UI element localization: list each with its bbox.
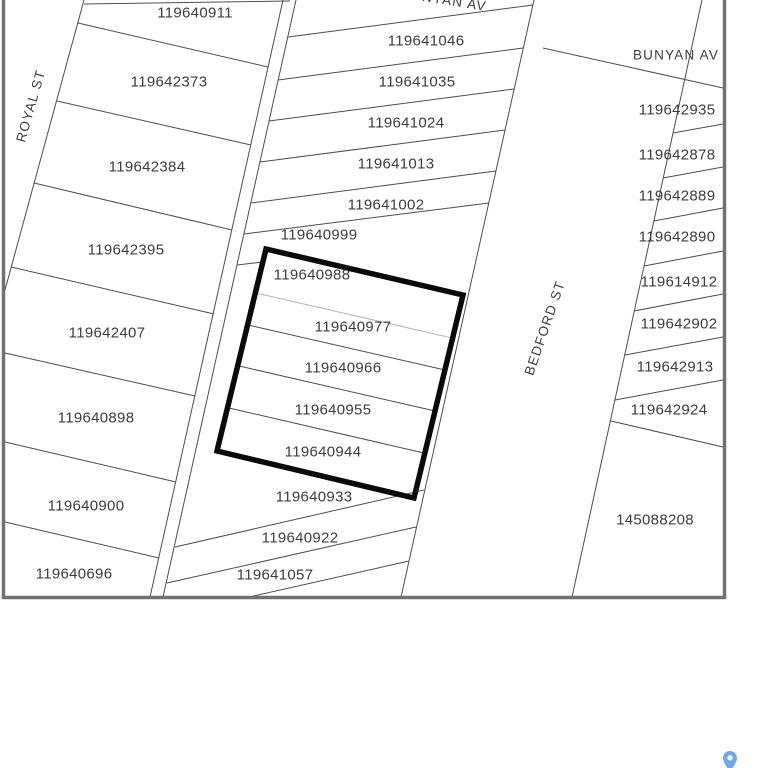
- parcel-label-119642407: 119642407: [69, 326, 146, 341]
- parcel-label-119642924: 119642924: [631, 403, 708, 418]
- parcel-label-119642878: 119642878: [639, 148, 716, 163]
- street-label-bunyan-av: BUNYAN AV: [400, 0, 487, 13]
- parcel-label-119641024: 119641024: [368, 116, 445, 131]
- parcel-label-119642913: 119642913: [637, 360, 714, 375]
- parcel-label-119640966: 119640966: [305, 361, 382, 376]
- parcel-label-119640944: 119640944: [285, 445, 362, 460]
- parcel-label-119640999: 119640999: [281, 228, 358, 243]
- parcel-label-119614912: 119614912: [641, 275, 718, 290]
- street-label-bunyan-av: BUNYAN AV: [633, 48, 719, 62]
- parcel-map: 1196409111196423731196423841196423951196…: [0, 0, 768, 768]
- parcel-label-119640922: 119640922: [262, 531, 339, 546]
- parcel-label-119642935: 119642935: [639, 103, 716, 118]
- parcel-label-119641046: 119641046: [388, 34, 465, 49]
- parcel-label-119642890: 119642890: [639, 230, 716, 245]
- map-labels-layer: 1196409111196423731196423841196423951196…: [0, 0, 768, 768]
- parcel-label-119640898: 119640898: [58, 411, 135, 426]
- parcel-label-119641035: 119641035: [379, 75, 456, 90]
- parcel-label-119640988: 119640988: [274, 268, 351, 283]
- parcel-label-119641013: 119641013: [358, 157, 435, 172]
- parcel-label-119640900: 119640900: [48, 499, 125, 514]
- parcel-label-119640933: 119640933: [276, 490, 353, 505]
- parcel-label-119641002: 119641002: [348, 198, 425, 213]
- parcel-label-119641057: 119641057: [237, 568, 314, 583]
- parcel-label-119640911: 119640911: [157, 6, 233, 21]
- parcel-label-119642384: 119642384: [109, 160, 186, 175]
- parcel-label-119640955: 119640955: [295, 403, 372, 418]
- parcel-label-119642889: 119642889: [639, 189, 716, 204]
- street-label-bedford-st: BEDFORD ST: [522, 279, 567, 377]
- street-label-royal-st: ROYAL ST: [14, 68, 48, 144]
- parcel-label-145088208: 145088208: [616, 513, 694, 528]
- parcel-label-119642902: 119642902: [641, 317, 718, 332]
- parcel-label-119642395: 119642395: [88, 243, 165, 258]
- parcel-label-119642373: 119642373: [131, 75, 208, 90]
- parcel-map-page: 1196409111196423731196423841196423951196…: [0, 0, 768, 768]
- parcel-label-119640696: 119640696: [36, 567, 113, 582]
- parcel-label-119640977: 119640977: [315, 320, 392, 335]
